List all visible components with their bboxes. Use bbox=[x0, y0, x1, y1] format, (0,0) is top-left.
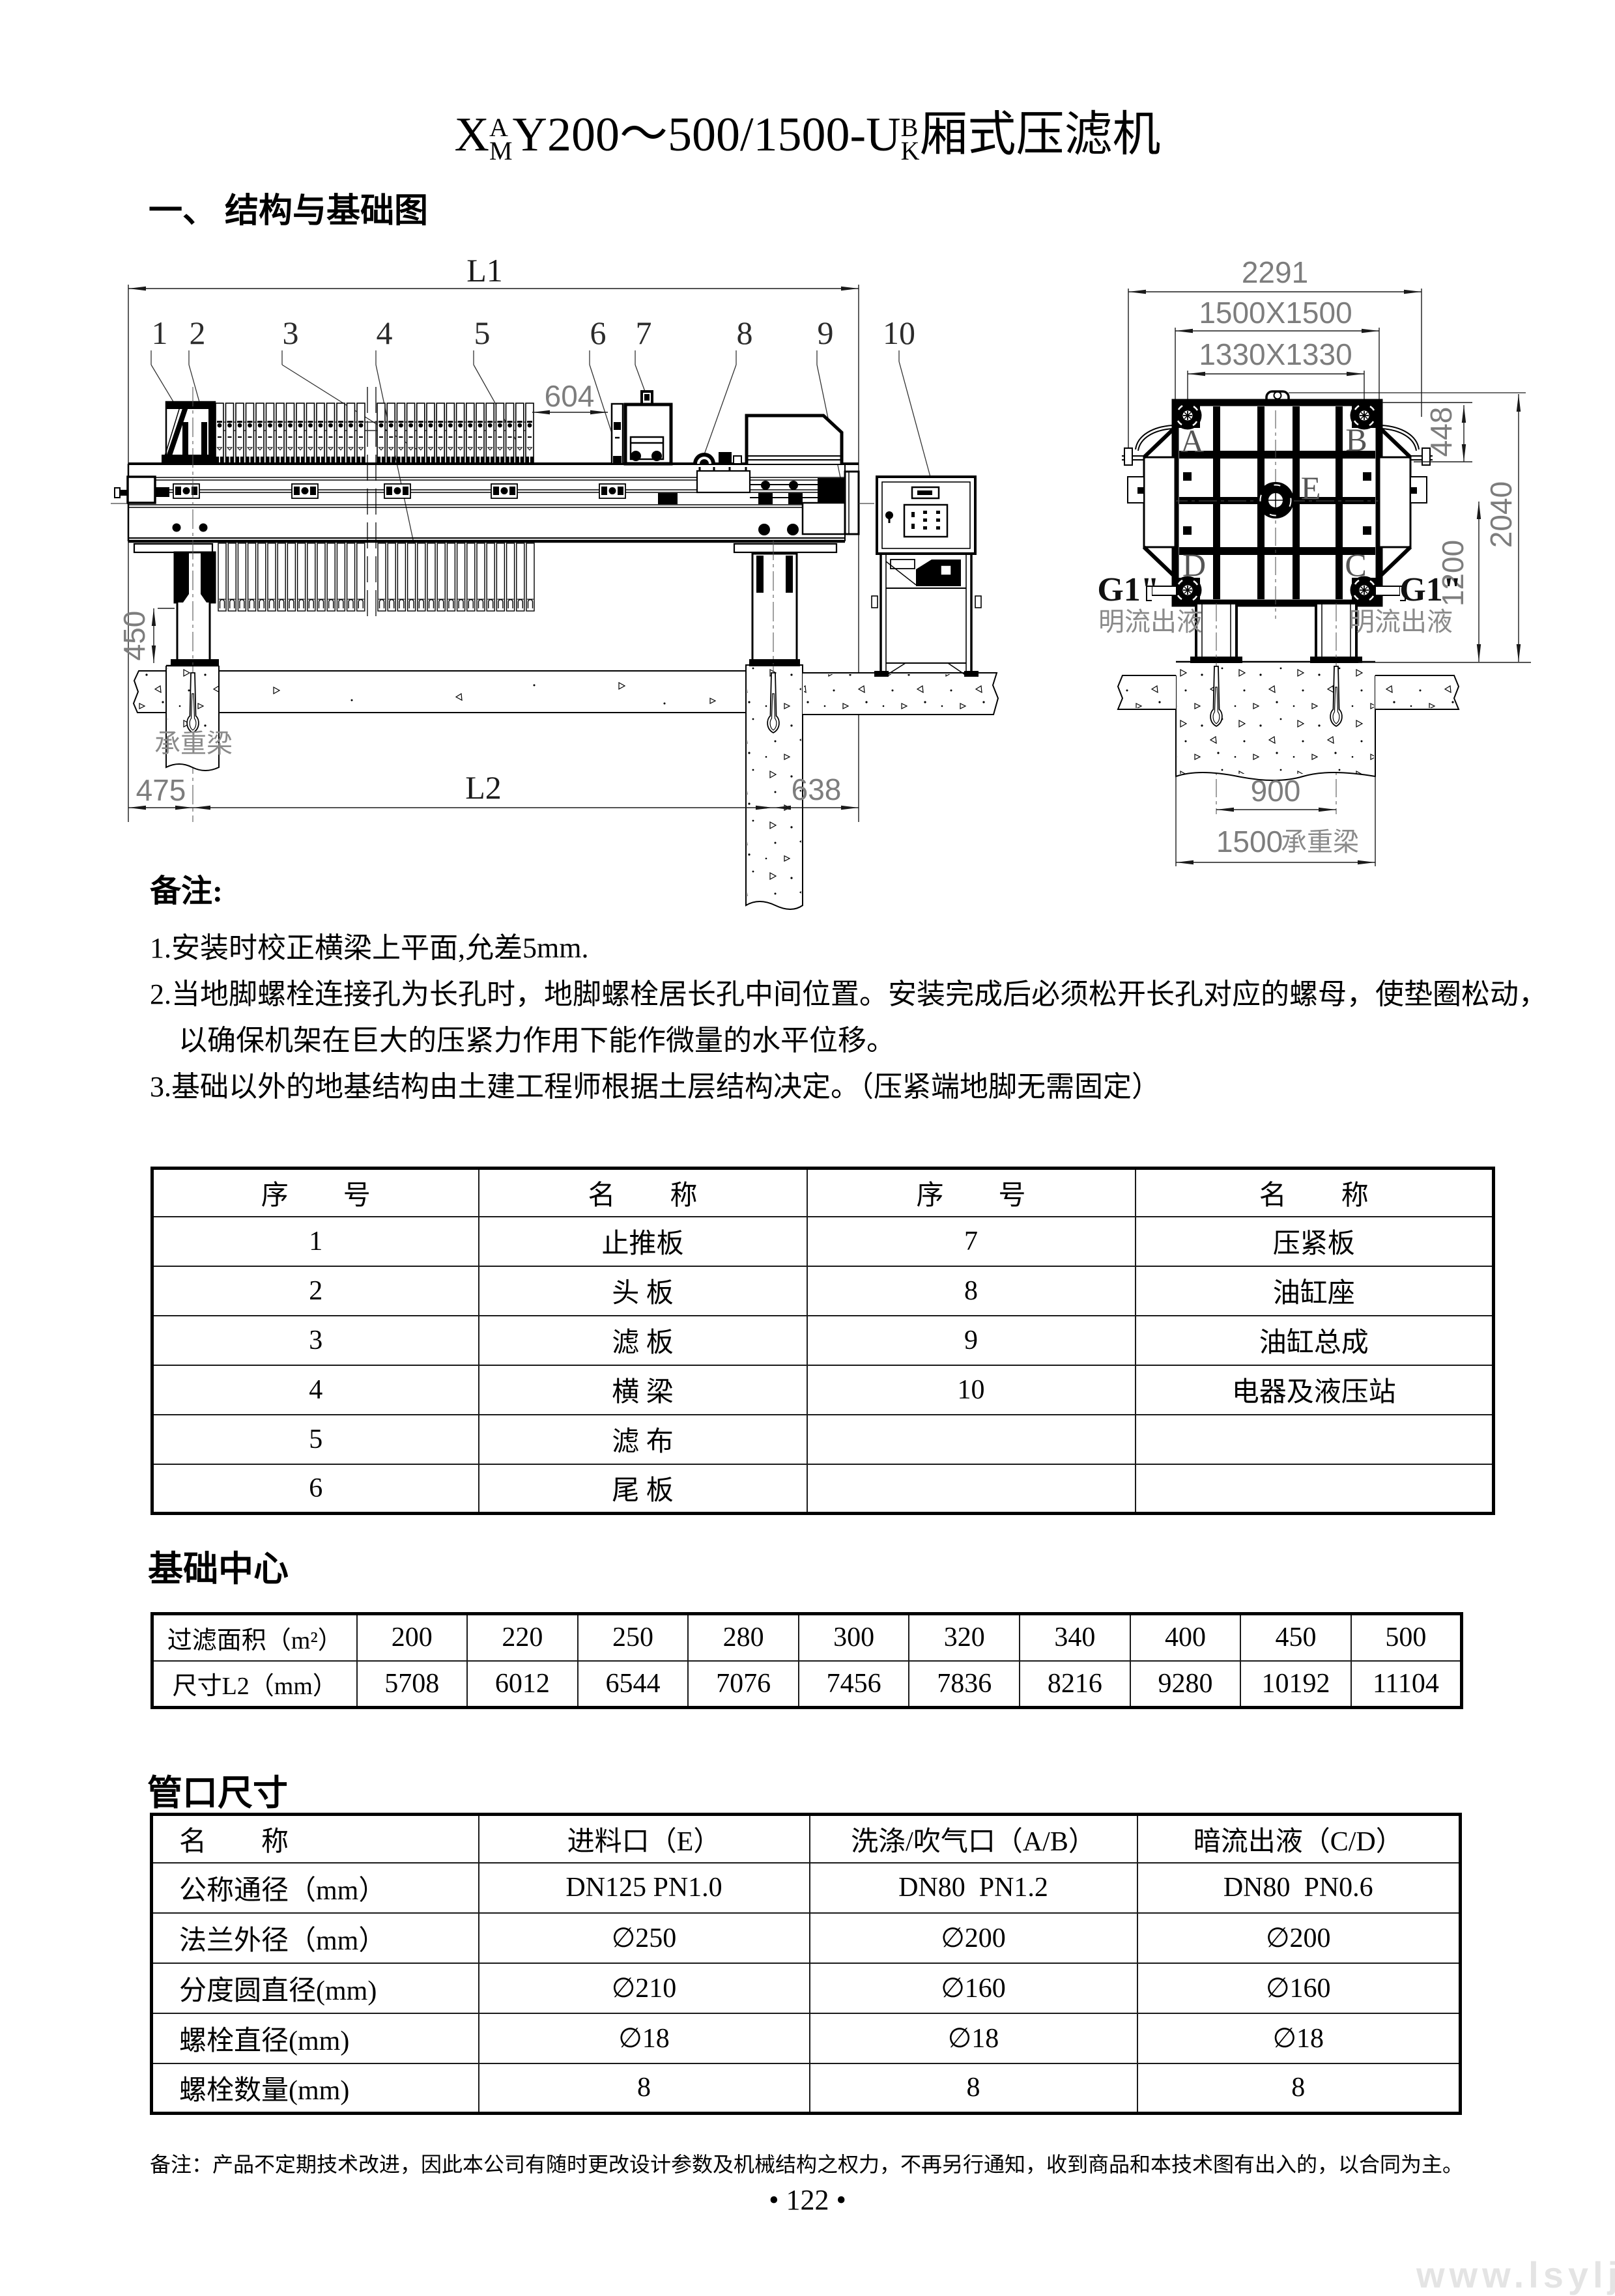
svg-text:2291: 2291 bbox=[1242, 255, 1308, 289]
svg-text:7: 7 bbox=[636, 315, 652, 351]
svg-text:明流出液: 明流出液 bbox=[1098, 608, 1203, 636]
svg-text:2040: 2040 bbox=[1484, 481, 1518, 548]
svg-text:承重梁: 承重梁 bbox=[1281, 828, 1359, 857]
svg-text:明流出液: 明流出液 bbox=[1349, 608, 1453, 636]
svg-text:1500: 1500 bbox=[1216, 825, 1283, 858]
svg-text:5: 5 bbox=[474, 315, 491, 351]
svg-text:E: E bbox=[1301, 470, 1321, 506]
svg-text:448: 448 bbox=[1424, 407, 1458, 457]
svg-text:A: A bbox=[1180, 423, 1204, 459]
svg-text:475: 475 bbox=[136, 773, 186, 807]
svg-text:4: 4 bbox=[377, 315, 393, 351]
svg-text:3: 3 bbox=[283, 315, 299, 351]
svg-text:6: 6 bbox=[590, 315, 607, 351]
svg-text:C: C bbox=[1345, 546, 1366, 583]
svg-text:L1: L1 bbox=[466, 252, 503, 289]
svg-text:G1": G1" bbox=[1399, 571, 1461, 608]
svg-text:10: 10 bbox=[883, 315, 915, 351]
svg-text:L2: L2 bbox=[465, 769, 502, 806]
svg-text:1: 1 bbox=[152, 315, 168, 351]
svg-text:9: 9 bbox=[818, 315, 834, 351]
svg-text:638: 638 bbox=[792, 772, 842, 806]
svg-text:2: 2 bbox=[190, 315, 206, 351]
svg-text:G1": G1" bbox=[1097, 571, 1159, 608]
svg-text:8: 8 bbox=[737, 315, 753, 351]
svg-text:450: 450 bbox=[117, 611, 151, 661]
svg-text:1500X1500: 1500X1500 bbox=[1199, 296, 1352, 330]
svg-text:承重梁: 承重梁 bbox=[154, 730, 233, 758]
svg-text:900: 900 bbox=[1251, 774, 1301, 808]
svg-text:1330X1330: 1330X1330 bbox=[1199, 337, 1352, 371]
svg-text:D: D bbox=[1182, 546, 1206, 583]
svg-text:B: B bbox=[1345, 421, 1367, 458]
svg-text:604: 604 bbox=[545, 379, 595, 413]
